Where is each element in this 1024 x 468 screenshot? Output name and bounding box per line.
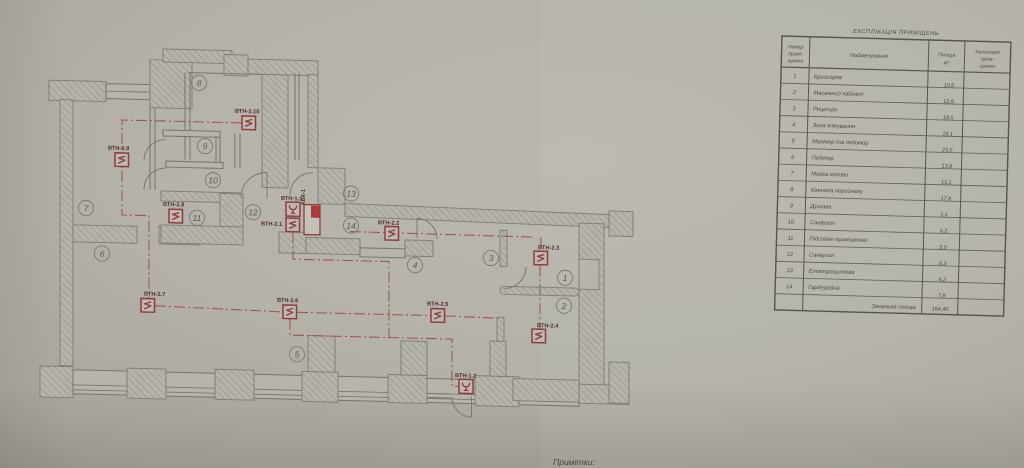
svg-text:14: 14 bbox=[346, 221, 356, 231]
svg-text:Педікюр: Педікюр bbox=[812, 155, 834, 162]
svg-text:13: 13 bbox=[786, 268, 793, 274]
svg-text:ВТН-1.1: ВТН-1.1 bbox=[281, 196, 302, 203]
svg-text:Зона очікування: Зона очікування bbox=[812, 123, 855, 130]
svg-text:ВТН-2.6: ВТН-2.6 bbox=[277, 298, 298, 305]
svg-text:ВТН-2.5: ВТН-2.5 bbox=[427, 301, 448, 308]
svg-text:11: 11 bbox=[193, 213, 202, 223]
svg-text:16,1: 16,1 bbox=[942, 131, 953, 137]
svg-text:Гардеробна: Гардеробна bbox=[808, 285, 840, 292]
svg-text:ВТН-2.7: ВТН-2.7 bbox=[144, 292, 165, 299]
svg-text:11: 11 bbox=[788, 236, 794, 242]
svg-text:Загальна площа: Загальна площа bbox=[871, 304, 915, 311]
svg-text:9: 9 bbox=[790, 203, 793, 209]
svg-text:Найменування: Найменування bbox=[850, 52, 888, 60]
svg-text:ВТН-2.3: ВТН-2.3 bbox=[538, 245, 559, 252]
svg-text:Санвузол: Санвузол bbox=[810, 220, 836, 227]
svg-text:Душова: Душова bbox=[809, 204, 831, 211]
svg-text:щення: щення bbox=[788, 58, 804, 64]
svg-text:6,3: 6,3 bbox=[939, 261, 947, 267]
svg-text:прим-: прим- bbox=[981, 56, 995, 62]
svg-text:5,9: 5,9 bbox=[939, 245, 947, 251]
svg-text:Примітки:: Примітки: bbox=[553, 457, 596, 467]
svg-text:13,8: 13,8 bbox=[941, 164, 952, 170]
svg-text:17,8: 17,8 bbox=[941, 196, 952, 202]
svg-text:6,2: 6,2 bbox=[940, 228, 948, 234]
svg-text:1: 1 bbox=[793, 74, 796, 80]
svg-text:Мийка голови: Мийка голови bbox=[811, 171, 849, 179]
svg-text:10: 10 bbox=[788, 220, 795, 226]
svg-text:ВТН-2.4: ВТН-2.4 bbox=[537, 323, 559, 330]
svg-text:Номер: Номер bbox=[788, 44, 804, 50]
svg-text:12: 12 bbox=[787, 252, 794, 258]
svg-text:12,8: 12,8 bbox=[943, 99, 954, 105]
svg-text:9: 9 bbox=[203, 141, 208, 151]
svg-text:щення: щення bbox=[980, 63, 996, 69]
svg-text:ВТН-2.8: ВТН-2.8 bbox=[163, 202, 184, 209]
svg-text:2: 2 bbox=[561, 301, 567, 311]
svg-text:14: 14 bbox=[786, 284, 792, 290]
svg-text:10: 10 bbox=[208, 175, 218, 185]
svg-text:1: 1 bbox=[563, 273, 568, 283]
svg-text:Рецепція: Рецепція bbox=[813, 107, 837, 114]
svg-text:Площа: Площа bbox=[938, 52, 955, 58]
svg-text:Категорія: Категорія bbox=[975, 49, 1000, 56]
svg-text:10,6: 10,6 bbox=[944, 83, 955, 89]
svg-text:примі-: примі- bbox=[788, 51, 803, 57]
svg-text:18,5: 18,5 bbox=[943, 115, 955, 121]
svg-text:4: 4 bbox=[413, 260, 418, 270]
svg-text:ВТН-2.2: ВТН-2.2 bbox=[378, 220, 399, 227]
svg-text:м²: м² bbox=[944, 60, 950, 66]
svg-text:ВТН-2.10: ВТН-2.10 bbox=[235, 109, 259, 116]
svg-text:6: 6 bbox=[100, 249, 105, 259]
svg-text:Електрощитова: Електрощитова bbox=[809, 269, 855, 276]
svg-text:164,40: 164,40 bbox=[932, 306, 949, 312]
svg-text:15,1: 15,1 bbox=[941, 180, 952, 186]
svg-text:ВТН-1.2: ВТН-1.2 bbox=[455, 373, 476, 380]
svg-text:7,8: 7,8 bbox=[938, 293, 946, 299]
svg-text:5: 5 bbox=[295, 349, 300, 359]
svg-text:12: 12 bbox=[248, 207, 258, 217]
svg-text:ВТН-2.9: ВТН-2.9 bbox=[108, 146, 129, 153]
svg-text:3: 3 bbox=[489, 253, 494, 263]
svg-text:23,9: 23,9 bbox=[941, 147, 953, 153]
svg-text:Масажний кабінет: Масажний кабінет bbox=[813, 90, 864, 98]
svg-text:Санвузол: Санвузол bbox=[809, 253, 835, 260]
svg-text:Криосауна: Криосауна bbox=[814, 74, 842, 81]
svg-text:13: 13 bbox=[346, 189, 356, 199]
svg-text:ВТН-2.1: ВТН-2.1 bbox=[261, 221, 282, 228]
svg-text:4,2: 4,2 bbox=[938, 277, 946, 283]
svg-text:4: 4 bbox=[792, 122, 795, 128]
svg-text:5,6: 5,6 bbox=[940, 212, 948, 218]
svg-text:8: 8 bbox=[197, 78, 202, 88]
